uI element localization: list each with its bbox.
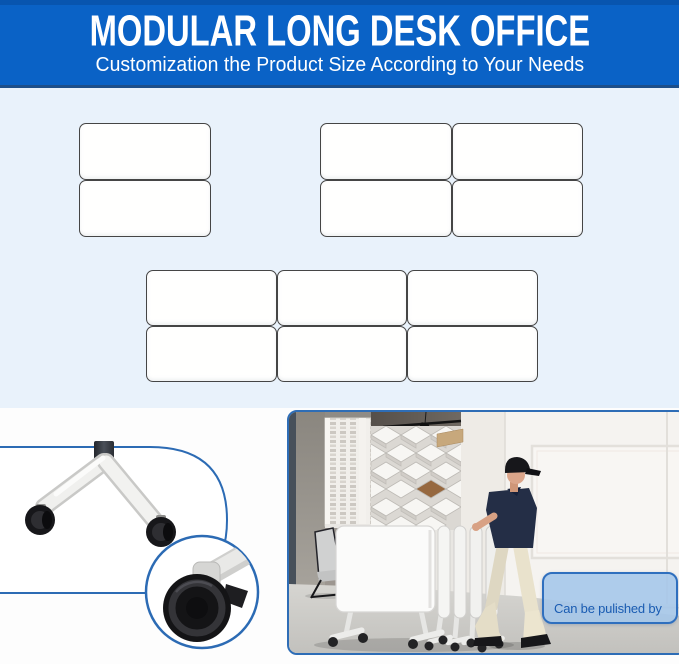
diamond-pattern-wall — [356, 426, 476, 534]
detail-section: Can be pulished by one person — [0, 408, 679, 664]
folded-desk-stack — [336, 526, 498, 618]
product-image: MODULAR LONG DESK OFFICE Customization t… — [0, 0, 679, 664]
desk-layout-diagram — [0, 88, 679, 408]
desk-group-six — [146, 270, 538, 382]
page-subtitle: Customization the Product Size According… — [95, 54, 584, 76]
push-photo: Can be pulished by one person — [287, 410, 679, 655]
desk-top — [407, 270, 538, 326]
desk-top — [407, 326, 538, 382]
desk-top — [320, 123, 452, 180]
desk-top — [146, 326, 277, 382]
desk-top — [277, 270, 408, 326]
photo-caption-text: Can be pulished by one person — [554, 601, 662, 624]
desk-group-two — [79, 123, 211, 237]
desk-group-four — [320, 123, 583, 237]
caster-leg-illustration — [0, 408, 290, 664]
desk-top — [452, 123, 584, 180]
page-title: MODULAR LONG DESK OFFICE — [89, 10, 589, 52]
desk-top — [452, 180, 584, 237]
caster-zoom-inset — [146, 536, 258, 648]
photo-caption: Can be pulished by one person — [542, 572, 678, 624]
desk-top — [79, 123, 211, 180]
desk-top — [146, 270, 277, 326]
window — [325, 418, 371, 528]
header-banner: MODULAR LONG DESK OFFICE Customization t… — [0, 0, 679, 88]
desk-top — [79, 180, 211, 237]
desk-top — [320, 180, 452, 237]
caster-leg-figure — [0, 408, 290, 664]
desk-top — [277, 326, 408, 382]
